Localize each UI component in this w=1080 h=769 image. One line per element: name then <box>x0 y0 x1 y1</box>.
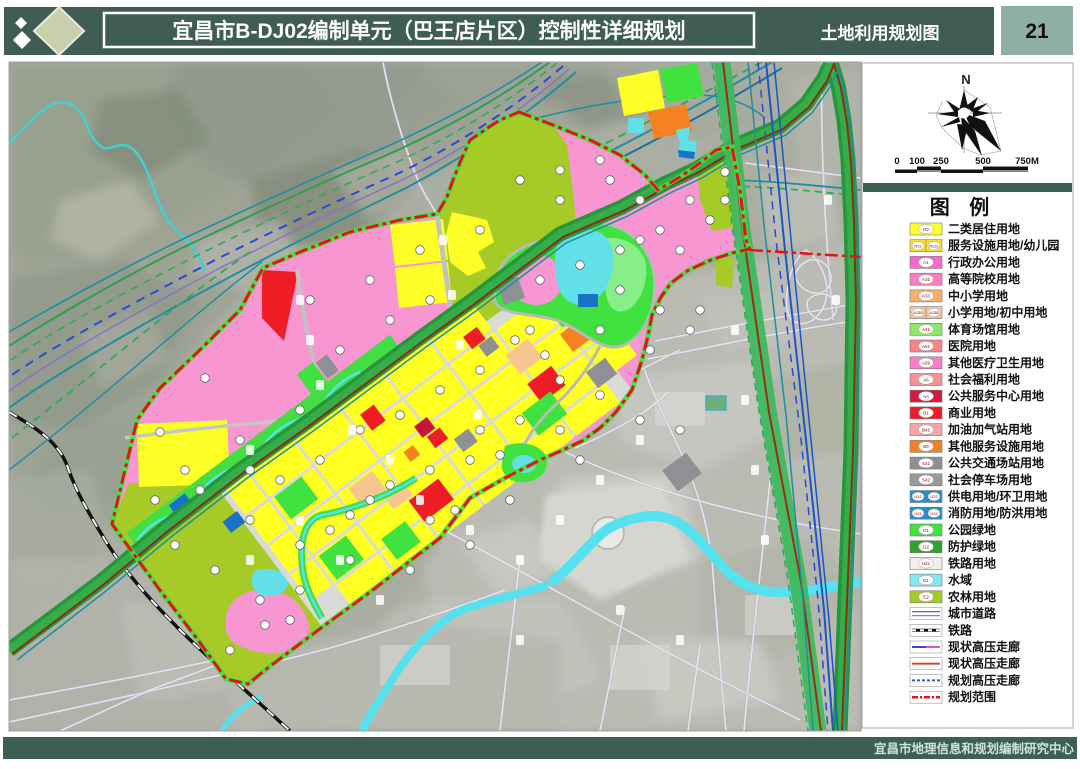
svg-text:750M: 750M <box>1015 156 1039 167</box>
svg-text:B41: B41 <box>922 427 931 432</box>
svg-text:社会停车场用地: 社会停车场用地 <box>947 472 1032 487</box>
svg-text:二类居住用地: 二类居住用地 <box>948 221 1020 236</box>
svg-text:公共交通场站用地: 公共交通场站用地 <box>948 455 1044 470</box>
svg-text:A1: A1 <box>923 260 929 265</box>
svg-text:规划高压走廊: 规划高压走廊 <box>948 672 1020 687</box>
svg-text:加油加气站用地: 加油加气站用地 <box>947 422 1032 437</box>
svg-text:A33B: A33B <box>913 310 923 315</box>
svg-text:图 例: 图 例 <box>930 195 997 219</box>
svg-text:0: 0 <box>894 156 899 167</box>
svg-text:R22y: R22y <box>929 243 938 248</box>
svg-text:U32: U32 <box>930 511 938 516</box>
svg-text:体育场馆用地: 体育场馆用地 <box>948 321 1020 336</box>
svg-text:B9: B9 <box>923 444 929 449</box>
svg-text:中小学用地: 中小学用地 <box>948 288 1008 303</box>
svg-text:铁路用地: 铁路用地 <box>948 555 996 570</box>
svg-text:H21: H21 <box>922 561 931 566</box>
svg-text:R22: R22 <box>914 243 922 248</box>
svg-text:U12: U12 <box>914 494 922 499</box>
svg-text:服务设施用地/幼儿园: 服务设施用地/幼儿园 <box>948 238 1059 253</box>
svg-text:规划范围: 规划范围 <box>948 689 996 704</box>
svg-text:G2: G2 <box>923 545 930 550</box>
svg-text:N: N <box>961 72 970 87</box>
svg-text:小学用地/初中用地: 小学用地/初中用地 <box>948 305 1047 320</box>
svg-text:供电用地/环卫用地: 供电用地/环卫用地 <box>947 489 1047 504</box>
svg-text:宜昌市地理信息和规划编制研究中心: 宜昌市地理信息和规划编制研究中心 <box>874 741 1075 756</box>
svg-text:铁路: 铁路 <box>948 622 973 637</box>
svg-text:消防用地/防洪用地: 消防用地/防洪用地 <box>948 505 1047 520</box>
svg-text:商业用地: 商业用地 <box>948 405 996 420</box>
svg-text:农林用地: 农林用地 <box>947 589 996 604</box>
svg-text:其他医疗卫生用地: 其他医疗卫生用地 <box>948 355 1044 370</box>
svg-text:土地利用规划图: 土地利用规划图 <box>821 23 940 43</box>
svg-text:医院用地: 医院用地 <box>948 338 996 353</box>
svg-text:100: 100 <box>909 156 925 167</box>
svg-text:S42: S42 <box>922 478 931 483</box>
svg-text:水域: 水域 <box>948 572 972 587</box>
svg-text:AA: AA <box>923 394 929 399</box>
svg-text:其他服务设施用地: 其他服务设施用地 <box>948 438 1044 453</box>
svg-text:G1: G1 <box>923 528 930 533</box>
svg-text:A33: A33 <box>922 294 931 299</box>
svg-text:高等院校用地: 高等院校用地 <box>948 271 1020 286</box>
svg-text:宜昌市B-DJ02编制单元（巴王店片区）控制性详细规划: 宜昌市B-DJ02编制单元（巴王店片区）控制性详细规划 <box>172 19 685 43</box>
svg-text:A41: A41 <box>922 327 931 332</box>
svg-text:防护绿地: 防护绿地 <box>948 539 996 554</box>
svg-text:R2: R2 <box>923 227 929 232</box>
svg-text:现状高压走廊: 现状高压走廊 <box>948 656 1020 671</box>
svg-text:A33B: A33B <box>929 310 939 315</box>
svg-text:公共服务中心用地: 公共服务中心用地 <box>948 388 1044 403</box>
svg-text:A31: A31 <box>922 277 931 282</box>
svg-text:A59: A59 <box>922 361 931 366</box>
svg-text:S41: S41 <box>922 461 931 466</box>
svg-text:行政办公用地: 行政办公用地 <box>947 254 1020 269</box>
svg-text:E2: E2 <box>923 595 929 600</box>
svg-text:500: 500 <box>975 156 991 167</box>
svg-text:公园绿地: 公园绿地 <box>948 522 996 537</box>
svg-text:城市道路: 城市道路 <box>948 606 997 621</box>
svg-text:现状高压走廊: 现状高压走廊 <box>948 639 1020 654</box>
svg-text:21: 21 <box>1025 20 1049 43</box>
svg-text:社会福利用地: 社会福利用地 <box>947 372 1020 387</box>
svg-text:A6: A6 <box>923 377 929 382</box>
svg-text:U21: U21 <box>914 511 922 516</box>
svg-text:250: 250 <box>933 156 949 167</box>
svg-text:E1: E1 <box>923 578 929 583</box>
svg-text:B1: B1 <box>923 411 929 416</box>
svg-text:U22: U22 <box>930 494 938 499</box>
svg-text:A51: A51 <box>922 344 931 349</box>
